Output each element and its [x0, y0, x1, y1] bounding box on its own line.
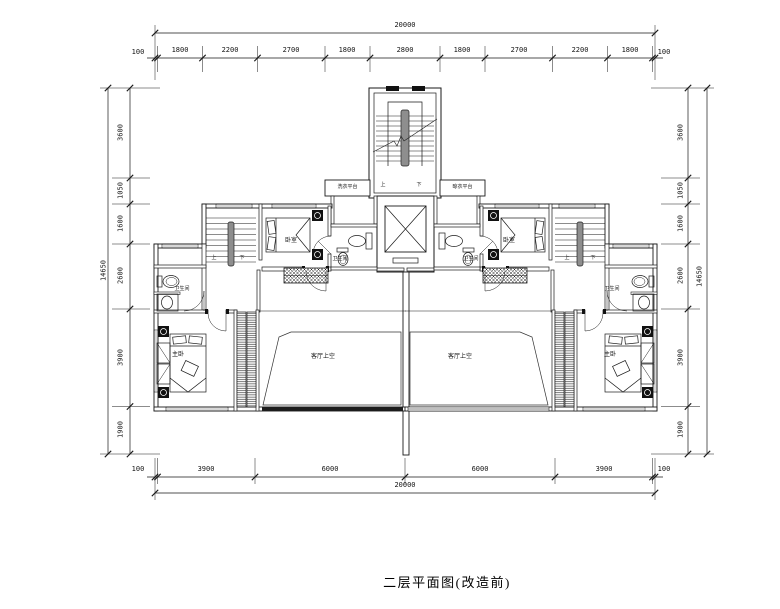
light-fixture: [158, 387, 169, 398]
dim-top-segment: 2700: [271, 46, 311, 55]
light-fixture: [642, 387, 653, 398]
sink-fixture: [349, 233, 373, 249]
stair-rail: [228, 222, 234, 266]
dim-left-segment: 3600: [117, 115, 126, 151]
dim-top-segment: 2200: [560, 46, 600, 55]
dim-bottom-total: 20000: [385, 481, 425, 490]
room-label-bedroom-left: 卧室: [277, 238, 305, 244]
light-fixture: [312, 249, 323, 260]
floorplan-canvas: 100 1800 2200 2700 1800 2800 1800 2700 2…: [0, 0, 780, 609]
sink-fixture: [157, 294, 178, 311]
light-fixture: [158, 326, 169, 337]
party-wall: [403, 272, 409, 455]
stair-mark-up: 上: [562, 256, 572, 261]
bed-furniture: [170, 334, 206, 392]
bath-center-right: [434, 224, 498, 270]
elevator-core: [331, 196, 480, 455]
dim-top-total: 20000: [385, 21, 425, 30]
light-fixture: [642, 326, 653, 337]
stair-mark-down: 下: [414, 183, 424, 188]
floorplan-svg: [0, 0, 780, 609]
dim-right-segment: 1600: [677, 206, 686, 242]
drawing-title: 二层平面图(改造前): [357, 576, 537, 589]
toilet-fixture: [632, 276, 654, 288]
living-void-outline: [263, 332, 401, 405]
wardrobe: [641, 343, 654, 384]
dim-bottom-end-right: 100: [654, 465, 674, 474]
dim-top-segment: 2800: [385, 46, 425, 55]
room-label-master-left: 主卧: [164, 352, 192, 358]
dim-top-end-left: 100: [128, 48, 148, 57]
room-label-bath-center-right: 卫生间: [457, 257, 485, 262]
left-unit: [154, 204, 406, 411]
dim-right-segment: 1900: [677, 412, 686, 448]
door-arc: [184, 291, 204, 311]
dim-left-segment: 1900: [117, 412, 126, 448]
dim-right-segment: 1050: [677, 173, 686, 209]
void-glazing-left: [262, 407, 403, 411]
right-unit: [405, 204, 657, 411]
bed-furniture: [266, 218, 310, 252]
room-label-bath-center-left: 卫生间: [326, 257, 354, 262]
door-arc: [585, 313, 603, 331]
platform-right-label: 晾衣平台: [442, 185, 483, 190]
room-label-bath-outer-left: 卫生间: [168, 287, 196, 292]
living-void-outline: [410, 332, 548, 405]
light-fixture: [488, 249, 499, 260]
dim-right-segment: 3600: [677, 115, 686, 151]
door-arc: [607, 291, 627, 311]
dim-top-end-right: 100: [654, 48, 674, 57]
closet-hatch: [483, 268, 527, 283]
dim-top-segment: 2700: [499, 46, 539, 55]
louver-strips: [237, 312, 256, 407]
stair-mark-down: 下: [588, 256, 598, 261]
dim-bottom-segment: 3900: [584, 465, 624, 474]
dim-left-segment: 1050: [117, 173, 126, 209]
stair-mark-up: 上: [378, 183, 388, 188]
room-label-bedroom-right: 卧室: [495, 238, 523, 244]
louver-strips: [555, 312, 574, 407]
room-label-void-left: 客厅上空: [295, 354, 351, 360]
dim-right-segment: 2600: [677, 258, 686, 294]
light-fixture: [312, 210, 323, 221]
dim-bottom-segment: 6000: [460, 465, 500, 474]
dim-bottom-segment: 3900: [186, 465, 226, 474]
closet-hatch: [284, 268, 328, 283]
bath-center-left: [313, 224, 377, 270]
dim-bottom-segment: 6000: [310, 465, 350, 474]
room-label-bath-outer-right: 卫生间: [598, 287, 626, 292]
stair-mark-up: 上: [209, 256, 219, 261]
dim-left-segment: 1600: [117, 206, 126, 242]
door-arc: [208, 313, 226, 331]
room-label-master-right: 主卧: [596, 352, 624, 358]
dim-right-segment: 3900: [677, 340, 686, 376]
sink-fixture: [439, 233, 463, 249]
bed-furniture: [501, 218, 545, 252]
light-fixture: [488, 210, 499, 221]
dim-left-segment: 2600: [117, 258, 126, 294]
room-label-void-right: 客厅上空: [432, 354, 488, 360]
sink-fixture: [633, 294, 654, 311]
dim-top-segment: 1800: [610, 46, 650, 55]
stair-mark-down: 下: [237, 256, 247, 261]
bed-furniture: [605, 334, 641, 392]
wardrobe: [157, 343, 170, 384]
dim-top-segment: 1800: [327, 46, 367, 55]
stair-rail: [577, 222, 583, 266]
dim-bottom-end-left: 100: [128, 465, 148, 474]
dim-top-segment: 1800: [160, 46, 200, 55]
dim-top-segment: 1800: [442, 46, 482, 55]
platform-left-label: 洗衣平台: [327, 185, 368, 190]
dim-left-total: 14650: [100, 249, 109, 293]
dim-top-segment: 2200: [210, 46, 250, 55]
dim-left-segment: 3900: [117, 340, 126, 376]
dim-right-total: 14650: [696, 255, 705, 299]
